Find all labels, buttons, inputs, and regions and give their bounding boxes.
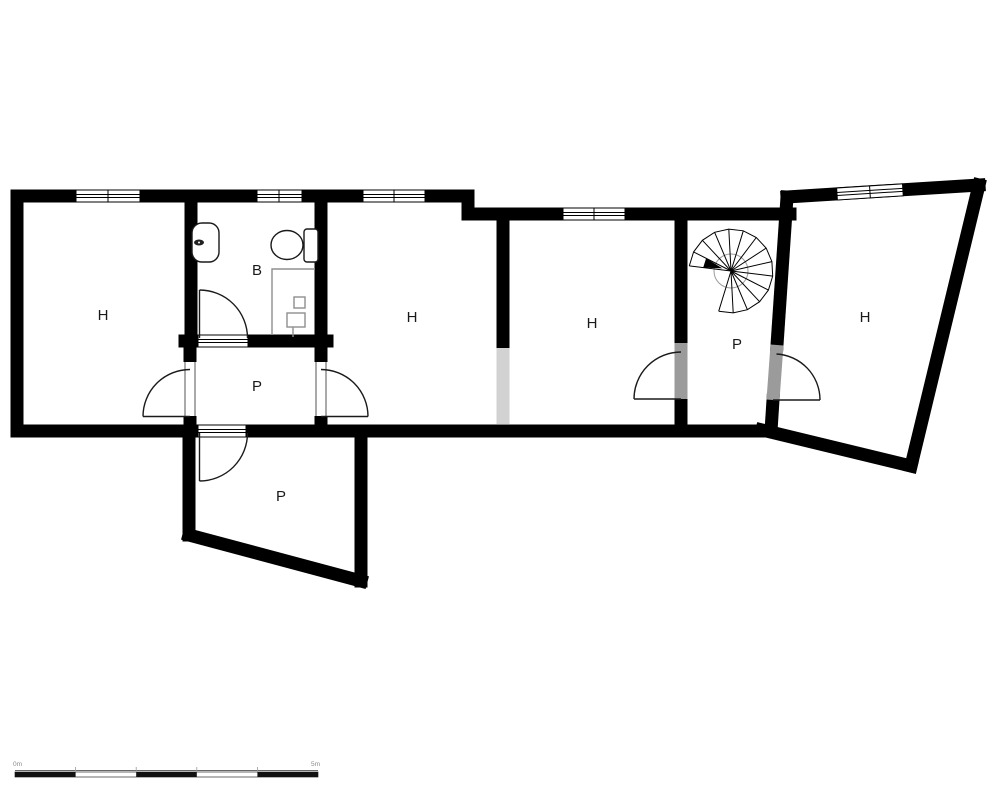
room-label-h-left: H xyxy=(98,307,109,324)
scale-bar-segment xyxy=(257,772,318,777)
wall-tilted-left-lower xyxy=(771,400,773,431)
wall-tilted-right xyxy=(911,185,979,466)
window-5-tilted xyxy=(837,184,904,200)
bath-door-threshold xyxy=(198,335,248,347)
window-4 xyxy=(563,208,625,220)
bathroom-door xyxy=(200,290,248,338)
lowerp-door xyxy=(200,433,248,481)
window-3 xyxy=(363,190,425,202)
floor-plan-page: H B H H P H P P 0m 5m xyxy=(0,0,1000,800)
floor-plan-svg: H B H H P H P P 0m 5m xyxy=(0,0,1000,800)
scale-label-start: 0m xyxy=(13,761,22,768)
wall-tilted-bottom xyxy=(762,430,911,466)
room-label-h-tilted: H xyxy=(860,309,871,326)
openings xyxy=(184,335,778,437)
hall-left-door xyxy=(143,370,190,417)
room-label-stair-hall: P xyxy=(732,336,742,353)
sink xyxy=(192,223,219,262)
wall-lowerp-bottom xyxy=(189,535,361,581)
scale-bar-segment xyxy=(136,772,197,777)
open-passage xyxy=(497,348,510,424)
scale-bar: 0m 5m xyxy=(13,761,320,777)
window-2 xyxy=(257,190,302,202)
spiral-staircase-icon xyxy=(689,229,772,313)
toilet xyxy=(271,229,318,262)
scale-bar-segment xyxy=(15,772,76,777)
scale-label-end: 5m xyxy=(311,761,320,768)
room-label-bathroom: B xyxy=(252,262,262,279)
stairhall-door xyxy=(634,352,681,399)
lowerp-door-threshold xyxy=(198,425,246,437)
room-label-hallway: P xyxy=(252,378,262,395)
hall-right-door xyxy=(321,370,368,417)
doors xyxy=(143,290,820,481)
stair-direction-arrow-icon xyxy=(703,258,722,268)
room-label-h-middle: H xyxy=(407,309,418,326)
room-label-p-lower: P xyxy=(276,488,286,505)
room-labels: H B H H P H P P xyxy=(98,262,871,505)
bathroom-fixtures xyxy=(192,223,318,337)
window-1 xyxy=(76,190,140,202)
shower xyxy=(272,269,315,337)
room-label-h-mid-right: H xyxy=(587,315,598,332)
tilted-door-threshold xyxy=(773,345,777,400)
